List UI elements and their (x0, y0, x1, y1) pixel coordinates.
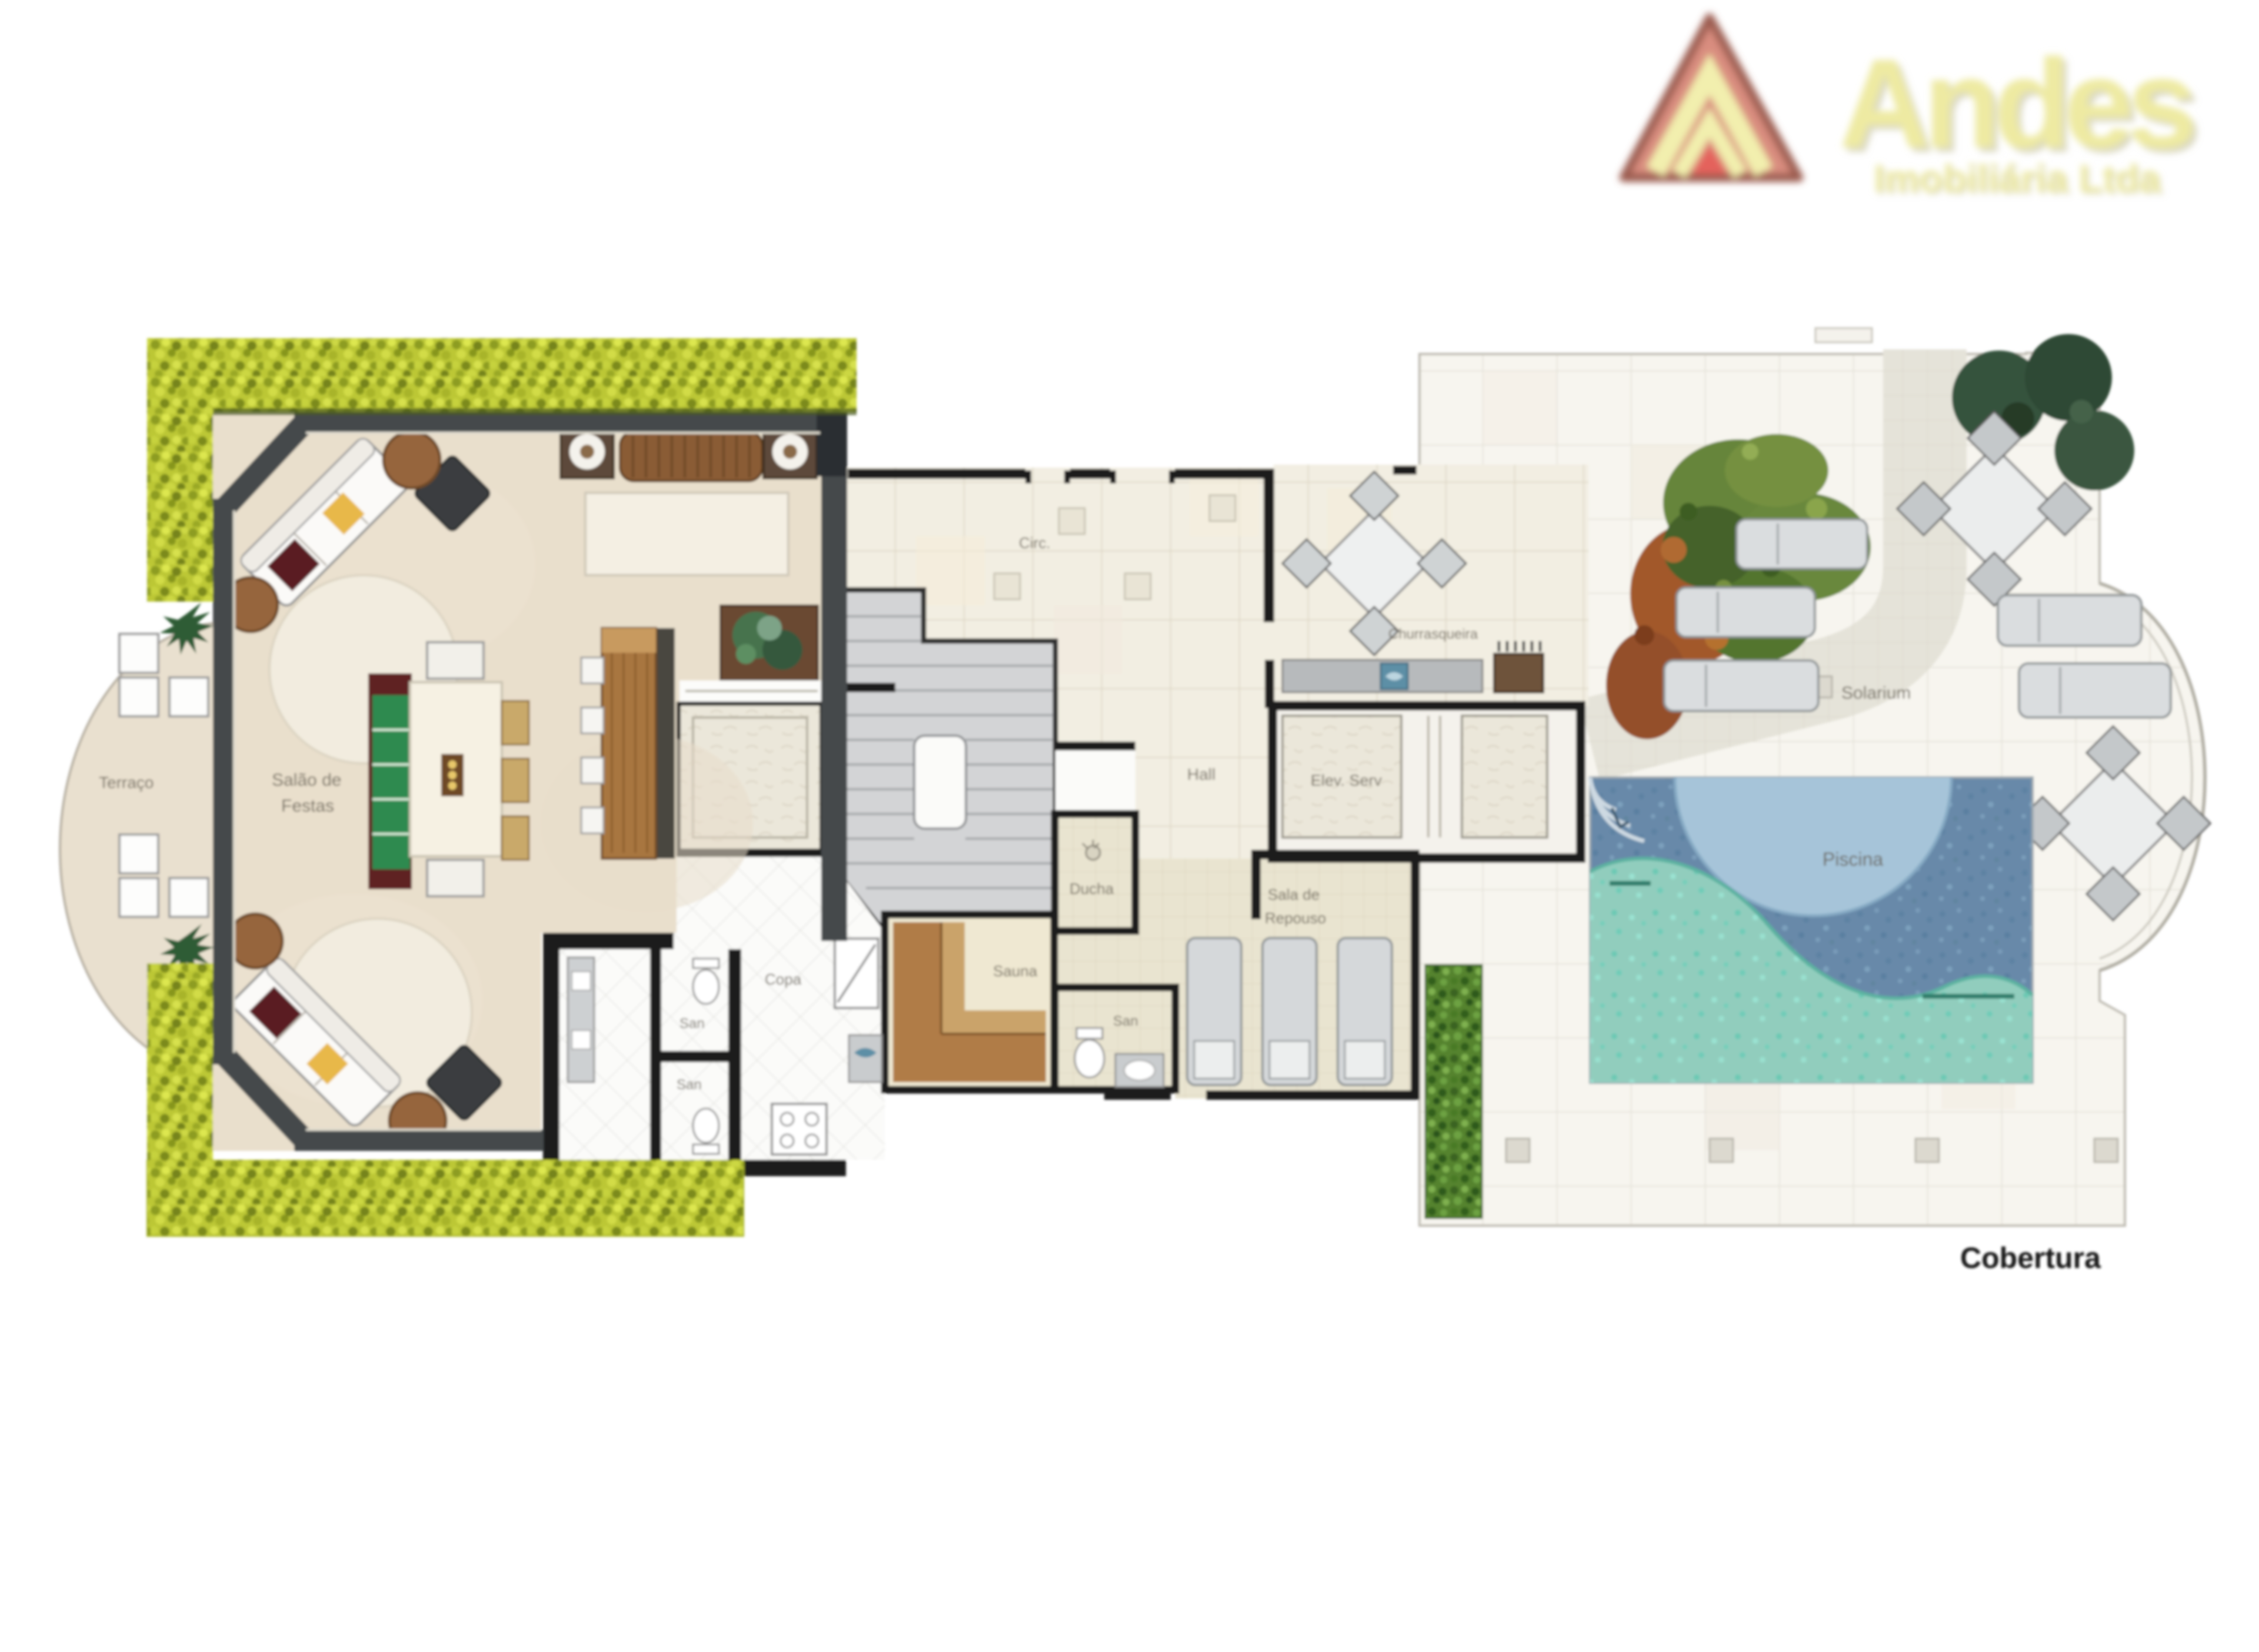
svg-text:Festas: Festas (281, 796, 334, 816)
svg-text:Churrasqueira: Churrasqueira (1388, 626, 1478, 642)
svg-text:Solarium: Solarium (1841, 683, 1911, 703)
svg-text:Repouso: Repouso (1265, 909, 1326, 927)
svg-text:Salão de: Salão de (272, 770, 341, 790)
svg-text:Circ.: Circ. (1019, 534, 1050, 552)
svg-text:Cobertura: Cobertura (1960, 1241, 2101, 1274)
svg-text:Hall: Hall (1187, 765, 1215, 783)
svg-text:San: San (1113, 1013, 1138, 1029)
svg-text:Copa: Copa (765, 970, 802, 988)
svg-text:Elev. Serv: Elev. Serv (1311, 772, 1382, 789)
svg-text:San: San (679, 1016, 705, 1032)
svg-text:Andes: Andes (1839, 32, 2193, 174)
svg-text:Imobiliária Ltda: Imobiliária Ltda (1874, 156, 2161, 200)
svg-text:Terraço: Terraço (99, 773, 154, 792)
svg-text:Sala de: Sala de (1268, 886, 1320, 903)
svg-text:Sauna: Sauna (993, 962, 1038, 980)
svg-text:Ducha: Ducha (1069, 880, 1114, 897)
svg-text:Piscina: Piscina (1822, 849, 1883, 870)
svg-text:San: San (677, 1077, 702, 1093)
